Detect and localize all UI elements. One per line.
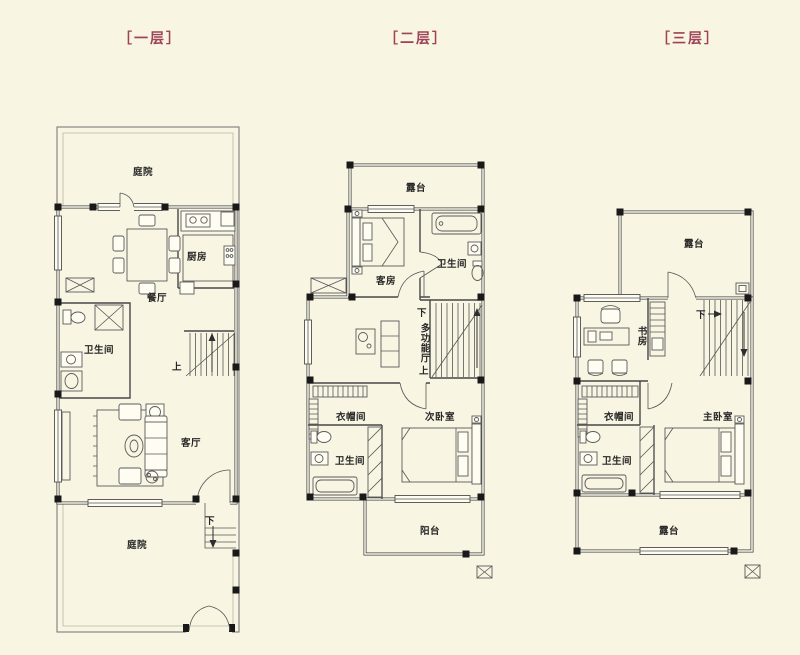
second-bedroom-bed [402, 416, 481, 484]
room-label-bedroom2: 次卧室 [425, 411, 455, 423]
floor2-stairs [432, 303, 482, 377]
floor1-shower [95, 305, 123, 330]
room-label-terrace2: 露台 [406, 182, 426, 194]
stair-label-down3: 下 [696, 310, 706, 321]
room-label-study: 书房 [636, 325, 648, 346]
room-label-courtyard-bottom: 庭院 [127, 539, 147, 551]
floor2-planter-box [477, 566, 492, 578]
down-arrow3 [708, 311, 722, 318]
room-label-guest: 客房 [375, 275, 396, 287]
dining-table [113, 215, 180, 294]
floor3-toilet [580, 431, 600, 443]
floor1-stairs-up [186, 333, 234, 376]
study-desk [584, 306, 629, 376]
study-bookshelf [650, 302, 665, 356]
room-label-cloak3: 衣帽间 [604, 411, 634, 423]
floor1-entry-door [196, 470, 230, 507]
floor2-closet-strip [368, 427, 382, 497]
floor1-plan: 庭院 厨房 餐厅 卫生间 上 客厅 下 庭院 [55, 127, 240, 636]
room-label-bathroom1: 卫生间 [84, 344, 114, 356]
room-label-living: 客厅 [180, 437, 201, 449]
room-label-balcony: 阳台 [420, 525, 440, 537]
floor1-toilet [63, 310, 85, 324]
floor1-ac-platform [66, 278, 94, 292]
floor2-toilet-bottom [311, 431, 331, 443]
courtyard-gate [183, 606, 235, 636]
stair-label-up1: 上 [172, 361, 182, 373]
floor1-courtyard-door [120, 193, 134, 211]
floor2-sink-bottom [311, 452, 328, 465]
room-label-bath3: 卫生间 [602, 455, 632, 467]
room-label-dining: 餐厅 [146, 292, 167, 304]
courtyard-boundary [57, 127, 239, 632]
room-label-kitchen: 厨房 [187, 251, 207, 263]
room-label-cloak2: 衣帽间 [336, 411, 366, 423]
sofa-set [93, 404, 167, 486]
floor2-windows [305, 206, 471, 503]
floor3-stairs [700, 300, 750, 376]
hall-tv-cabinet [356, 329, 375, 354]
tv-cabinet [62, 412, 70, 480]
stove [224, 246, 235, 265]
floor2-toilet-top [472, 261, 483, 281]
room-label-bath2-top: 卫生间 [437, 258, 467, 270]
floor2-bathtub-top [432, 213, 481, 234]
guest-bed [352, 210, 404, 274]
stair-label-down2: 下 [417, 308, 427, 319]
room-label-courtyard-top: 庭院 [133, 166, 153, 178]
room-label-master: 主卧室 [703, 411, 733, 423]
room-label-terrace3-bottom: 露台 [659, 525, 679, 537]
floor2-sink-top [468, 242, 481, 255]
stair-label-up2: 上 [419, 365, 429, 377]
floor3-planter-box [745, 565, 760, 578]
floor3-bathtub [582, 475, 626, 492]
floorplan-sheet: ［一层］ ［二层］ ［三层］ [0, 0, 800, 655]
floorplans-svg: 庭院 厨房 餐厅 卫生间 上 客厅 下 庭院 [0, 0, 800, 655]
floor3-sink [580, 452, 597, 465]
hall-sofa [381, 321, 399, 367]
floor2-bathtub-bottom [313, 477, 357, 495]
stair-label-down1: 下 [205, 516, 215, 527]
floor3-plan: 露台 下 书房 衣帽间 主卧室 卫生间 露台 [574, 209, 761, 579]
floor3-closet-strip [640, 427, 654, 493]
room-label-terrace3-top: 露台 [684, 238, 704, 250]
floor1-sink [61, 352, 82, 391]
room-label-multi-hall: 多功能厅 [419, 322, 431, 363]
floor2-ac-platform [311, 278, 346, 293]
master-bed [665, 416, 744, 484]
floor2-plan: 露台 客房 卫生间 下 多功能厅 上 衣帽间 次卧室 卫生间 阳台 [305, 162, 493, 579]
floor3-bedroom-door [648, 383, 672, 409]
room-label-bath2-bottom: 卫生间 [335, 455, 365, 467]
